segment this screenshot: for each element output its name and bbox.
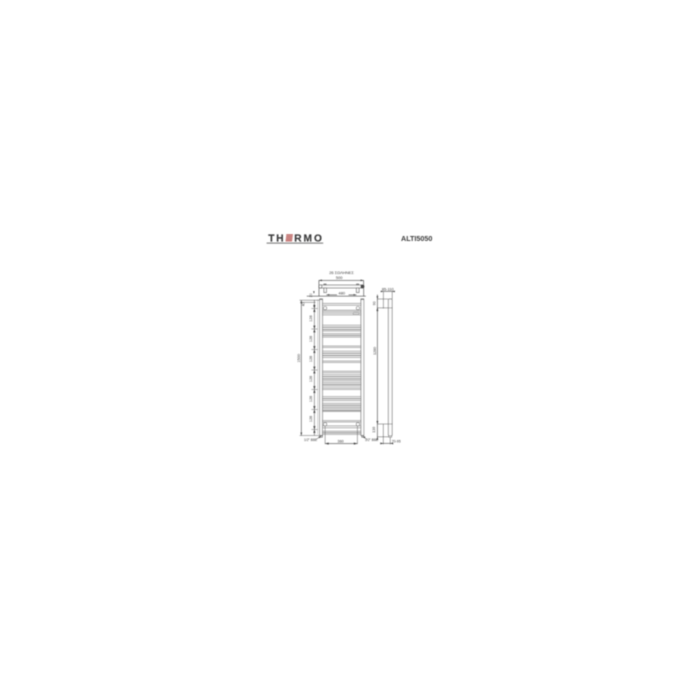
svg-text:20: 20	[309, 293, 313, 297]
svg-text:130: 130	[372, 427, 376, 433]
svg-text:1280: 1280	[373, 347, 377, 355]
svg-text:480: 480	[339, 290, 346, 295]
svg-text:128: 128	[309, 336, 313, 342]
svg-text:40: 40	[302, 302, 306, 306]
svg-text:90: 90	[373, 301, 377, 305]
svg-text:128: 128	[309, 376, 313, 382]
svg-text:ALTI5050: ALTI5050	[401, 234, 432, 243]
svg-text:85-110: 85-110	[382, 287, 395, 292]
svg-text:360: 360	[338, 439, 344, 443]
svg-text:128: 128	[309, 315, 313, 321]
svg-text:26 ΣΩΛΗΝΕΣ: 26 ΣΩΛΗΝΕΣ	[329, 270, 354, 275]
svg-text:128: 128	[309, 416, 313, 422]
svg-text:128: 128	[309, 356, 313, 362]
svg-text:128: 128	[309, 396, 313, 402]
svg-text:1/2" ΒΒΕ: 1/2" ΒΒΕ	[304, 438, 318, 442]
svg-text:70-95: 70-95	[392, 439, 401, 443]
svg-text:1500: 1500	[297, 354, 301, 362]
svg-text:500: 500	[336, 275, 343, 280]
